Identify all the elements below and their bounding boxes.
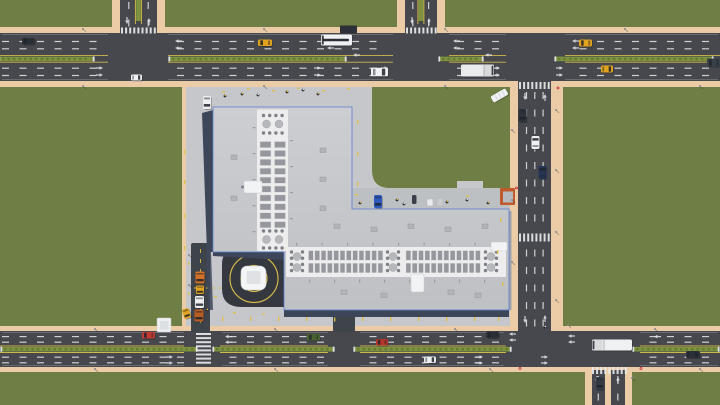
pavement-mark [322,90,325,91]
lane-dash [387,357,394,358]
crosswalk-stripe [540,234,542,242]
roof-seam [290,192,293,193]
lane-dash [685,68,692,69]
lane-dash [352,68,359,69]
roof-seam [347,243,348,246]
rear-window [688,352,690,357]
rear-window [31,39,33,44]
roof-seam [475,243,476,246]
lane-dash [37,48,44,49]
windshield [322,36,324,45]
roof-seam [484,280,485,283]
lane-dash [615,41,622,42]
pavement-mark [214,296,217,297]
rooftop-structure [491,242,507,251]
vehicle-car[interactable] [376,339,389,347]
vehicle-car[interactable] [486,332,500,340]
roof-fan [389,264,397,272]
hydrant-marker-center [520,368,521,369]
roof-vent-box [320,148,326,153]
vehicle-car[interactable] [307,334,321,342]
lane-dash [702,342,709,343]
lane-dash [475,336,482,337]
roof-vent-circle [290,257,293,260]
roof-vent-circle [280,131,283,134]
roof-seam [322,243,323,246]
lane-dash [107,357,114,358]
roof-vent-circle [262,131,265,134]
vehicle-car[interactable] [519,109,528,123]
vehicle-truck[interactable] [461,65,495,78]
lane-dash [282,362,289,363]
rear-window [716,60,718,66]
city-aerial-scene[interactable] [0,0,720,405]
lane-dash [125,336,132,337]
lane-dash [534,162,535,169]
median-cap [168,56,170,61]
vehicle-van[interactable] [195,296,205,309]
lane-dash [247,48,254,49]
skylight-panel [275,213,286,219]
roof-vent-circle [484,269,487,272]
lane-dash [300,68,307,69]
lane-dash [37,41,44,42]
crosswalk-stripe [414,28,416,34]
pavement-mark [418,317,419,321]
lane-dash [195,48,202,49]
roof-vent-box [371,227,377,232]
skylight-panel [444,251,449,261]
skylight-panel [425,251,430,261]
skylight-panel [321,251,326,261]
skylight-panel [438,263,443,273]
lane-dash [597,48,604,49]
lane-dash [387,362,394,363]
vehicle-van[interactable] [707,59,720,68]
roof-vent-box [475,293,481,298]
lane-dash [282,75,289,76]
roof-vent-circle [397,263,400,266]
barrel-prop [412,195,417,204]
lane-dash [2,41,9,42]
skylight-panel [457,263,462,273]
lane-dash [160,336,167,337]
crosswalk-stripe [435,28,437,34]
pavement-mark [497,250,498,254]
lane-dash [230,48,237,49]
lane-dash [492,342,499,343]
crosswalk-stripe [621,367,623,374]
streetlight-pole [511,261,513,263]
lane-dash [177,336,184,337]
lane-dash [543,127,544,134]
lane-dash [580,68,587,69]
lane-dash [685,362,692,363]
lane-dash [457,357,464,358]
crosswalk-stripe [431,28,433,34]
windshield [492,66,494,76]
lane-dash [685,75,692,76]
median-cap [353,347,355,352]
crosswalk-stripe [592,367,594,374]
lane-dash [230,68,237,69]
crosswalk-stripe [150,28,152,34]
lane-dash [2,362,9,363]
vehicle-car[interactable] [579,40,593,48]
hydrant-marker-center [558,88,559,89]
vehicle-van[interactable] [195,310,205,323]
lane-dash [543,180,544,187]
skylight-panel [346,251,351,261]
lane-dash [265,357,272,358]
lane-dash [148,2,149,9]
vehicle-car[interactable] [196,286,205,296]
crosswalk-stripe [196,337,211,339]
crosswalk-stripe [527,234,529,242]
vehicle-bus[interactable] [321,35,353,47]
lane-dash [142,357,149,358]
lane-arrow-tail [513,333,517,334]
crosswalk-stripe [600,367,602,374]
lane-arrow-tail [166,362,170,363]
roof-seam [253,127,256,128]
lane-dash [335,68,342,69]
roof-vent-circle [274,131,277,134]
pedestrian-head [207,309,209,311]
skylight-panel [353,263,358,273]
crosswalk-stripe [196,362,211,364]
lane-dash [475,41,482,42]
lane-dash [317,342,324,343]
windshield [539,168,545,171]
skylight-panel [419,263,424,273]
pavement-mark [222,317,223,321]
pavement-mark [502,282,503,286]
vehicle-car[interactable] [424,357,437,365]
pedestrian-head [447,201,449,203]
lane-dash [247,75,254,76]
vehicle-car[interactable] [532,136,541,150]
skylight-panel [450,263,455,273]
vehicle-van[interactable] [196,272,206,285]
lane-dash [90,362,97,363]
roof-fan [389,253,397,261]
pedestrian-head [242,93,244,95]
median-cap [510,347,512,352]
lane-dash [650,342,657,343]
lane-dash [492,41,499,42]
lane-dash [142,362,149,363]
lane-dash [543,320,544,327]
pedestrian-head [318,93,320,95]
roof-vent-circle [268,131,271,134]
lane-dash [492,357,499,358]
crosswalk-stripe [410,28,412,34]
lane-dash [667,41,674,42]
lane-dash [543,250,544,257]
streetlight-pole [188,254,190,256]
lane-dash [55,68,62,69]
lane-dash [440,357,447,358]
lane-dash [90,68,97,69]
lane-dash [247,336,254,337]
rooftop-structure [244,181,262,193]
streetlight-pole [555,299,557,301]
roof-seam [359,280,360,283]
lane-dash [632,41,639,42]
lane-arrow-tail [572,341,576,342]
lane-dash [72,336,79,337]
lane-dash [543,145,544,152]
crosswalk-stripe [133,28,135,34]
roof-vent-box [381,293,387,298]
roof-seam [253,231,256,232]
lane-dash [685,48,692,49]
pedestrian-head [404,203,406,205]
lane-dash [667,336,674,337]
lane-dash [300,336,307,337]
lane-dash [160,342,167,343]
crosswalk-stripe [596,367,598,374]
roof-vent-circle [262,229,265,232]
roof-seam [424,243,425,246]
crosswalk-stripe [125,28,127,34]
game-viewport[interactable] [0,0,720,405]
lane-arrow-tail [556,74,560,75]
lane-dash [580,75,587,76]
lane-dash [317,48,324,49]
lane-dash [247,68,254,69]
streetlight-pole [489,368,491,370]
pedestrian-head [287,91,289,93]
streetlight-pole [699,85,701,87]
lane-arrow-tail [556,67,560,68]
windshield [709,59,712,65]
lane-dash [650,362,657,363]
windshield [195,317,202,319]
lane-arrow-tail [576,40,580,41]
lane-dash [300,342,307,343]
streetlight-pole [624,28,626,30]
roof-fan [275,236,283,244]
streetlight-pole [567,324,569,326]
roof-fan [263,236,271,244]
pavement-mark [362,317,363,321]
skylight-panel [275,159,286,165]
roof-fan [487,253,495,261]
lane-dash [702,336,709,337]
lane-arrow-tail [524,93,525,97]
crosswalk-stripe [519,82,521,89]
skylight-panel [275,150,286,156]
skylight-panel [406,263,411,273]
lane-dash [597,75,604,76]
skylight-panel [309,263,314,273]
roof-seam [434,280,435,283]
crosswalk-stripe [527,82,529,89]
vehicle-car[interactable] [601,66,614,74]
vehicle-car[interactable] [258,40,273,48]
windshield [519,117,525,120]
skylight-panel [340,263,345,273]
lane-dash [300,362,307,363]
lane-dash [265,362,272,363]
lane-dash [90,357,97,358]
pedestrian-head [258,94,260,96]
lane-dash [230,362,237,363]
roof-seam [409,280,410,283]
vehicle-van[interactable] [371,68,389,78]
streetlight-pole [94,328,96,330]
lane-dash [72,342,79,343]
lane-dash [177,75,184,76]
lane-dash [534,267,535,274]
streetlight-pole [444,85,446,87]
lane-dash [702,48,709,49]
crosswalk-stripe [625,367,627,374]
streetlight-pole [274,328,276,330]
pedestrian-head [467,199,469,201]
vehicle-van[interactable] [203,96,212,110]
lane-dash [543,215,544,222]
lane-dash [317,357,324,358]
streetlight-pole [631,377,633,379]
rear-window [602,67,604,72]
median-planting [556,57,712,62]
lane-dash [230,41,237,42]
lane-arrow-tail [357,54,361,55]
lane-dash [72,41,79,42]
lane-dash [534,110,535,117]
hydrant-marker-center [516,188,517,189]
pavement-mark [233,312,236,313]
lane-dash [37,342,44,343]
median-planting [419,0,424,21]
vehicle-car[interactable] [142,332,156,340]
lane-dash [212,75,219,76]
lane-dash [405,336,412,337]
lane-dash [300,48,307,49]
streetlight-pole [94,368,96,370]
vehicle-car[interactable] [22,38,36,46]
roof-seam [398,243,399,246]
lane-dash [72,75,79,76]
lane-dash [37,357,44,358]
lane-arrow-tail [476,362,480,363]
lane-dash [177,357,184,358]
roof-vent-circle [301,263,304,266]
rear-window [520,111,526,113]
roof-vent-circle [280,246,283,249]
vehicle-car[interactable] [539,166,548,180]
windshield [488,332,491,337]
median-cap [482,56,484,61]
rear-window [588,41,590,46]
ramp-kiosk-roof [247,271,261,284]
lane-dash [526,302,527,309]
lane-arrow-tail [411,17,412,21]
lane-dash [230,357,237,358]
skylight-panel [412,263,417,273]
lane-arrow-tail [489,54,493,55]
lane-dash [55,41,62,42]
bus-shelter[interactable] [340,26,357,34]
skylight-panel [327,251,332,261]
crosswalk-stripe [121,28,123,34]
pavement-mark [184,246,185,250]
lane-dash [632,75,639,76]
lane-dash [55,75,62,76]
crate-prop [427,199,433,206]
rear-window [197,273,204,275]
roof-vent-circle [495,263,498,266]
roof-fan [487,264,495,272]
roof-vent-circle [397,269,400,272]
lane-dash [128,2,129,9]
windshield [138,75,140,79]
roof-fan [293,253,301,261]
roof-vent-circle [268,229,271,232]
vehicle-truck[interactable] [592,340,633,352]
windshield [597,385,603,388]
rear-window [268,41,270,46]
bus-windows [323,39,349,41]
roof-vent-box [231,155,237,160]
lane-dash [598,394,599,401]
lane-dash [20,48,27,49]
lane-dash [526,215,527,222]
pavement-mark [184,180,185,184]
windshield [432,357,434,362]
vehicle-car[interactable] [374,195,383,209]
crosswalk-stripe [196,345,211,347]
lane-dash [405,357,412,358]
median-cap [345,56,347,61]
vehicle-body [532,136,540,149]
skylight-panel [365,263,370,273]
windshield [196,303,203,305]
lane-dash [632,68,639,69]
vehicle-car[interactable] [131,75,143,82]
lane-arrow-tail [166,356,170,357]
lane-dash [282,41,289,42]
roof-vent-circle [280,114,283,117]
roof-seam [384,280,385,283]
lane-dash [265,48,272,49]
skylight-panel [315,251,320,261]
skylight-panel [359,251,364,261]
skylight-panel [476,251,481,261]
lane-arrow-tail [96,67,100,68]
vehicle-car[interactable] [686,351,701,359]
rear-window [385,340,387,345]
windshield [581,40,584,45]
lane-dash [300,357,307,358]
crosswalk-stripe [523,234,525,242]
lane-dash [492,48,499,49]
vehicle-car[interactable] [596,377,604,391]
lane-dash [37,362,44,363]
rear-window [196,297,203,299]
lane-dash [72,357,79,358]
courtyard-lawn [372,87,512,188]
lane-dash [352,41,359,42]
roof-vent-circle [268,246,271,249]
lane-dash [685,342,692,343]
crosswalk-stripe [196,349,211,351]
pavement-mark [250,317,251,321]
lane-arrow-tail [617,381,618,385]
